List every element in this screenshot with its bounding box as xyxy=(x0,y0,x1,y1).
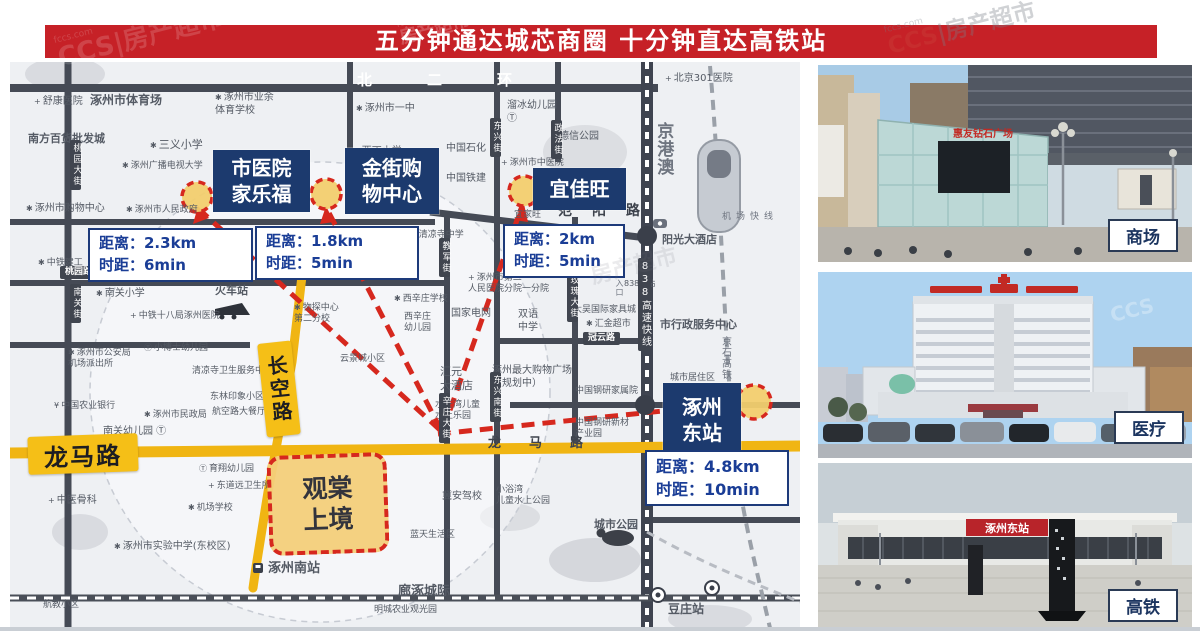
map-place-label: ✱物探中心 第二分校 xyxy=(294,303,339,326)
map-place-label: 冠云路 xyxy=(583,332,620,345)
map-place-label: 市行政服务中心 xyxy=(660,318,737,332)
photo-label-hospital: 医疗 xyxy=(1114,411,1184,444)
map-place-label: ✱涿州市购物中心 xyxy=(26,203,105,216)
map-place-label: ✱汇金超市 xyxy=(586,319,631,330)
map-place-label: Ⓣ育翔幼儿园 xyxy=(199,464,254,475)
map-place-label: 冀安驾校 xyxy=(442,491,482,504)
map-place-label: 大吴国际家具城 xyxy=(573,305,636,316)
map-place-label: 南方百货批发城 xyxy=(28,132,105,146)
photo-station: 涿州东站 高铁 xyxy=(818,463,1192,628)
street-name-label: 东兴南街 xyxy=(490,372,501,422)
map-place-label: +中铁十八局涿州医院 xyxy=(130,311,220,322)
street-name-label: 玫瑰大街 xyxy=(567,272,578,322)
south-station-icon xyxy=(253,563,263,573)
road-label-longma: 龙马路 xyxy=(27,433,138,475)
map-place-label: ✱南关小学 xyxy=(96,288,145,301)
map-place-label: 明城农业观光园 xyxy=(374,605,437,616)
promo-page: 五分钟通达城芯商圈 十分钟直达高铁站 fccs.com CCS|房产超市 fcc… xyxy=(0,0,1200,631)
map-place-label: +舒康医院 xyxy=(34,96,83,109)
photo-label-mall: 商场 xyxy=(1108,219,1178,252)
photo-label-station: 高铁 xyxy=(1108,589,1178,622)
photo-mall: 惠友钻石广场 商场 xyxy=(818,65,1192,262)
map-place-label: 中国石化 xyxy=(446,143,486,156)
hsr-branch-line xyxy=(647,532,800,602)
street-name-label: 政法街 xyxy=(551,120,562,159)
street-name-label: 辛庄大街 xyxy=(439,393,450,443)
map-place-label: 德信公园 xyxy=(559,131,599,144)
map-place-label: 涿州南站 xyxy=(268,561,320,577)
map-place-label: 蓝天生活区 xyxy=(410,530,455,541)
map-place-label: ✱涿州市实验中学(东校区) xyxy=(114,541,231,554)
map-place-label: 阳光大酒店 xyxy=(662,233,717,247)
map-place-label: 机场快线 xyxy=(722,212,778,223)
map-place-label: ✱涿州市公安局 机场派出所 xyxy=(68,348,131,371)
distance-box-yijiawang: 距离：2km 时距：5min xyxy=(503,224,625,278)
street-name-label: 东兴街 xyxy=(490,118,501,157)
header-banner: 五分钟通达城芯商圈 十分钟直达高铁站 xyxy=(45,25,1157,58)
map-place-label: ✱涿州市业余 体育学校 xyxy=(215,92,274,117)
map-place-label: 国家电网 xyxy=(451,308,491,321)
map-place-label: ✱涿州广播电视大学 xyxy=(122,161,203,172)
poi-callout-yijiawang: 宜佳旺 xyxy=(533,168,626,210)
map-place-label: 中国钢研家属院 xyxy=(575,386,638,397)
photo-hospital: 医疗 xyxy=(818,272,1192,458)
map-place-label: 北二环 xyxy=(357,71,567,90)
map-place-label: 汇元 大酒店 xyxy=(440,365,473,393)
map-place-label: ¥中国农业银行 xyxy=(54,401,115,412)
map-place-label: 宜家旺 xyxy=(514,210,541,221)
transit-map: +舒康医院涿州市体育场✱涿州市业余 体育学校南方百货批发城✱三义小学✱涿州广播电… xyxy=(10,62,800,628)
map-place-label: ✱西辛庄学校 xyxy=(394,294,448,305)
map-place-label: 廊涿城际 xyxy=(398,584,450,600)
bottom-rule xyxy=(0,627,1200,631)
map-place-label: 京石高铁 xyxy=(718,336,731,380)
map-place-label: 中国铁建 xyxy=(446,173,486,186)
map-place-label: 东林印象小区 xyxy=(210,392,264,403)
street-name-label: 南关街 xyxy=(70,284,81,323)
map-place-label: ✱涿州市人民政府 xyxy=(126,205,198,216)
map-place-label: 京港澳 xyxy=(652,122,673,176)
map-place-label: 豆庄站 xyxy=(668,602,704,617)
map-place-label: 西辛庄 幼儿园 xyxy=(404,312,431,335)
poi-callout-city-hospital-carrefour: 市医院 家乐福 xyxy=(213,150,310,212)
station-sign-text: 涿州东站 xyxy=(985,521,1029,535)
distance-box-city-hospital: 距离：2.3km 时距：6min xyxy=(88,228,253,282)
map-place-label: ✱涿州市一中 xyxy=(356,103,415,116)
poi-callout-golden-street-mall: 金街购 物中心 xyxy=(345,148,439,214)
map-place-label: 溜冰幼儿园 Ⓣ xyxy=(507,100,557,125)
map-place-label: 航教小区 xyxy=(43,600,79,611)
map-place-label: ✱涿州市民政局 xyxy=(144,410,207,421)
property-callout: 观棠 上境 xyxy=(266,452,389,556)
map-place-label: 小浴湾 儿童水上公园 xyxy=(496,485,550,508)
map-place-label: 涿州最大购物广场 （规划中） xyxy=(492,365,572,390)
map-place-label: 云景城小区 xyxy=(340,354,385,365)
map-place-label: ✱三义小学 xyxy=(150,138,203,152)
street-name-label: 教军街 xyxy=(439,238,450,277)
poi-callout-zhuozhou-east-station: 涿州 东站 xyxy=(663,383,741,457)
street-name-label: 桃园大街 xyxy=(70,140,81,190)
distance-box-golden-street: 距离：1.8km 时距：5min xyxy=(255,226,419,280)
map-place-label: +东道远卫生所 xyxy=(208,481,271,492)
map-place-label: 涿州市体育场 xyxy=(90,93,162,108)
map-place-label: ✱机场学校 xyxy=(188,503,233,514)
map-place-label: 双语 中学 xyxy=(518,309,538,334)
map-place-label: Ⓣ小博士幼儿园 xyxy=(144,343,208,354)
map-place-label: 航空路大餐厅 xyxy=(212,407,266,418)
map-place-label: 火车站 xyxy=(215,284,248,298)
mall-sign-text: 惠友钻石广场 xyxy=(953,127,1013,140)
street-name-label: 838高速快线 xyxy=(638,258,651,351)
map-place-label: +中医骨科 xyxy=(48,495,97,508)
map-place-label: 龙马路 xyxy=(488,436,611,452)
map-place-label: 城市公园 xyxy=(594,518,638,532)
map-place-label: +北京301医院 xyxy=(665,73,733,86)
distance-box-east-station: 距离：4.8km 时距：10min xyxy=(645,450,789,506)
